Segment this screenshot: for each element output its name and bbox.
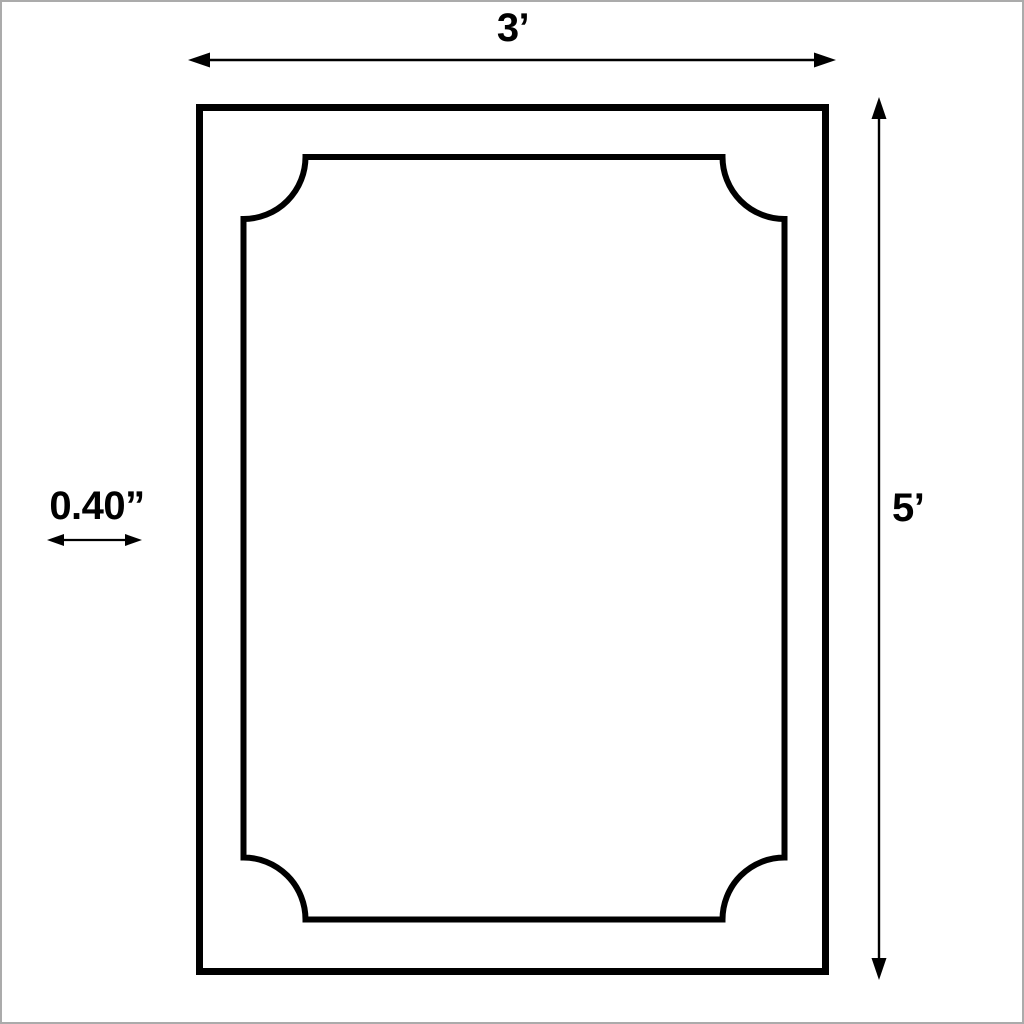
arrowhead-left-icon [47,534,64,546]
width-dimension-label: 3’ [438,8,588,48]
arrowhead-right-icon [125,534,142,546]
thickness-dimension-label: 0.40” [17,486,177,526]
width-dimension-arrow [188,53,836,68]
diagram-canvas: 3’ 5’ 0.40” [0,0,1024,1024]
arrowhead-up-icon [872,97,887,119]
arrowhead-left-icon [188,53,210,68]
arrowhead-down-icon [872,958,887,980]
arrowhead-right-icon [814,53,836,68]
height-dimension-label: 5’ [892,488,924,528]
outer-frame-rect [200,108,826,972]
height-dimension-arrow [872,97,887,980]
thickness-dimension-arrow [47,534,142,546]
inner-panel-outline [244,157,785,920]
